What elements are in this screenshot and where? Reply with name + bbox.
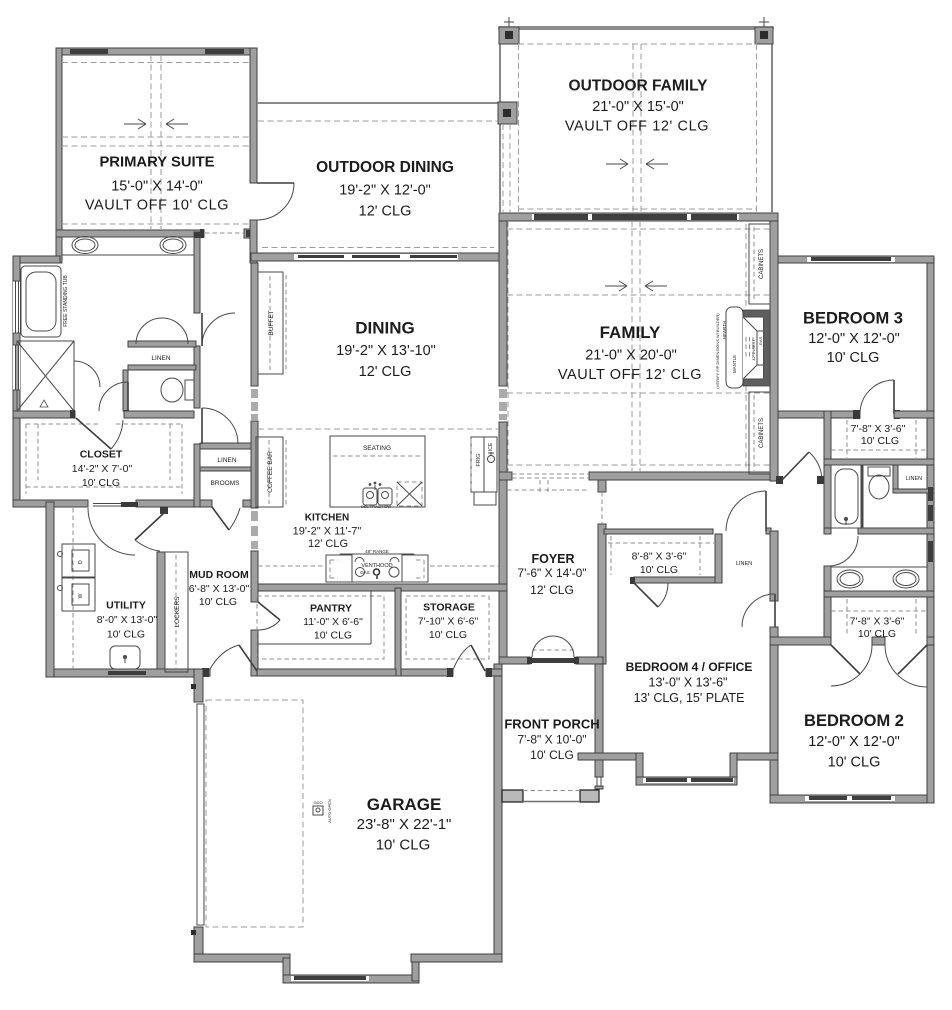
svg-text:D: D — [78, 560, 84, 564]
svg-text:GAS: GAS — [758, 336, 763, 345]
svg-text:10' CLG: 10' CLG — [199, 596, 237, 608]
svg-text:PANTRY: PANTRY — [310, 603, 352, 615]
svg-text:VAULT OFF 12' CLG: VAULT OFF 12' CLG — [558, 367, 702, 383]
svg-text:6'-8" X 13'-0": 6'-8" X 13'-0" — [189, 583, 250, 595]
svg-text:10' CLG: 10' CLG — [107, 629, 145, 641]
svg-text:7'-8" X 3'-6": 7'-8" X 3'-6" — [851, 423, 906, 435]
svg-text:19'-2" X 12'-0": 19'-2" X 12'-0" — [339, 183, 431, 199]
svg-text:10' CLG: 10' CLG — [861, 435, 899, 447]
svg-text:21'-0" X 15'-0": 21'-0" X 15'-0" — [592, 99, 684, 115]
svg-text:FRIG: FRIG — [476, 453, 482, 466]
svg-text:OUTDOOR FAMILY: OUTDOOR FAMILY — [569, 78, 709, 95]
svg-text:DINING: DINING — [355, 319, 415, 338]
svg-text:10' CLG: 10' CLG — [314, 630, 352, 642]
svg-text:13' CLG, 15' PLATE: 13' CLG, 15' PLATE — [634, 691, 745, 705]
svg-text:10' CLG: 10' CLG — [858, 628, 896, 640]
svg-text:MANTLE: MANTLE — [732, 355, 737, 373]
svg-text:15'-0" X 14'-0": 15'-0" X 14'-0" — [111, 179, 203, 195]
svg-text:7'-8" X 3'-6": 7'-8" X 3'-6" — [850, 616, 905, 628]
svg-text:COFFEE BAR: COFFEE BAR — [267, 451, 274, 493]
svg-text:10' CLG: 10' CLG — [82, 477, 120, 489]
svg-text:10' CLG: 10' CLG — [376, 837, 431, 854]
svg-text:7'-8" X 10'-0": 7'-8" X 10'-0" — [517, 733, 586, 747]
svg-text:BROOMS: BROOMS — [211, 480, 241, 487]
svg-text:LINEN: LINEN — [151, 355, 170, 362]
svg-text:CABINETS: CABINETS — [759, 418, 765, 448]
svg-text:SEATING: SEATING — [363, 445, 391, 452]
svg-text:LINEN: LINEN — [906, 476, 922, 482]
svg-text:UTILITY: UTILITY — [106, 600, 146, 612]
svg-text:FREE STANDING TUB: FREE STANDING TUB — [63, 275, 69, 327]
svg-text:48" RANGE: 48" RANGE — [365, 549, 389, 554]
svg-text:AUTO OPEN: AUTO OPEN — [327, 799, 332, 823]
svg-text:BUFFET: BUFFET — [268, 310, 275, 335]
svg-text:7'-6" X 14'-0": 7'-6" X 14'-0" — [517, 566, 586, 580]
svg-text:FOYER: FOYER — [531, 552, 574, 566]
svg-text:19'-2" X 11'-7": 19'-2" X 11'-7" — [293, 526, 362, 538]
svg-text:MUD ROOM: MUD ROOM — [189, 569, 249, 581]
svg-text:8'-8" X 3'-6": 8'-8" X 3'-6" — [632, 551, 687, 563]
svg-text:GAS: GAS — [360, 570, 370, 575]
svg-text:VAULT OFF 10' CLG: VAULT OFF 10' CLG — [85, 198, 229, 214]
svg-text:DBL TRASH DW: DBL TRASH DW — [361, 504, 391, 509]
svg-text:7'-10" X 6'-6": 7'-10" X 6'-6" — [418, 616, 479, 628]
svg-text:VAULT OFF 12' CLG: VAULT OFF 12' CLG — [565, 119, 709, 135]
svg-text:12'-0" X 12'-0": 12'-0" X 12'-0" — [808, 331, 900, 347]
svg-text:HEARTH: HEARTH — [722, 321, 727, 339]
svg-text:12' CLG: 12' CLG — [308, 538, 348, 550]
svg-text:10' CLG: 10' CLG — [530, 748, 574, 762]
svg-text:12' CLG: 12' CLG — [530, 583, 574, 597]
svg-text:CLOSET: CLOSET — [80, 449, 123, 461]
svg-text:12' CLG: 12' CLG — [359, 204, 412, 220]
svg-text:OUTDOOR DINING: OUTDOOR DINING — [316, 159, 454, 176]
svg-text:ICE: ICE — [488, 442, 494, 451]
svg-text:(VERIFY F/P DIMENSIONS W/ BUIL: (VERIFY F/P DIMENSIONS W/ BUILDER) — [715, 313, 720, 389]
svg-text:8'-0" X 13'-0": 8'-0" X 13'-0" — [97, 614, 158, 626]
svg-text:LOCKERS: LOCKERS — [174, 596, 181, 628]
svg-text:FAMILY: FAMILY — [600, 323, 661, 342]
svg-text:42" INSERT: 42" INSERT — [751, 339, 756, 361]
svg-text:19'-2" X 13'-10": 19'-2" X 13'-10" — [336, 343, 436, 359]
svg-text:FRONT PORCH: FRONT PORCH — [504, 717, 599, 732]
svg-text:W: W — [78, 593, 84, 598]
svg-text:GDO: GDO — [313, 800, 322, 805]
svg-text:10' CLG: 10' CLG — [828, 755, 881, 771]
svg-text:21'-0" X 20'-0": 21'-0" X 20'-0" — [585, 348, 677, 364]
svg-text:CABINETS: CABINETS — [759, 249, 765, 279]
svg-text:LINEN: LINEN — [217, 457, 236, 464]
svg-text:13'-0" X 13'-6": 13'-0" X 13'-6" — [649, 676, 728, 690]
svg-text:11'-0" X 6'-6": 11'-0" X 6'-6" — [303, 616, 363, 628]
svg-text:STORAGE: STORAGE — [423, 602, 475, 614]
svg-text:VENTHOOD: VENTHOOD — [361, 563, 392, 569]
svg-text:12'-0" X 12'-0": 12'-0" X 12'-0" — [808, 734, 900, 750]
svg-text:LINEN: LINEN — [736, 561, 752, 567]
svg-text:12' CLG: 12' CLG — [359, 364, 412, 380]
svg-text:GARAGE: GARAGE — [367, 795, 442, 814]
svg-text:BEDROOM 2: BEDROOM 2 — [804, 712, 904, 730]
svg-text:10' CLG: 10' CLG — [640, 564, 678, 576]
svg-text:14'-2" X 7'-0": 14'-2" X 7'-0" — [72, 463, 133, 475]
svg-text:BEDROOM 4 / OFFICE: BEDROOM 4 / OFFICE — [626, 660, 753, 674]
svg-text:10' CLG: 10' CLG — [429, 629, 467, 641]
svg-text:23'-8" X 22'-1": 23'-8" X 22'-1" — [357, 816, 452, 833]
svg-text:KITCHEN: KITCHEN — [305, 513, 349, 524]
svg-text:BEDROOM 3: BEDROOM 3 — [803, 310, 903, 328]
svg-text:10' CLG: 10' CLG — [827, 350, 880, 366]
svg-text:PRIMARY SUITE: PRIMARY SUITE — [99, 155, 214, 171]
